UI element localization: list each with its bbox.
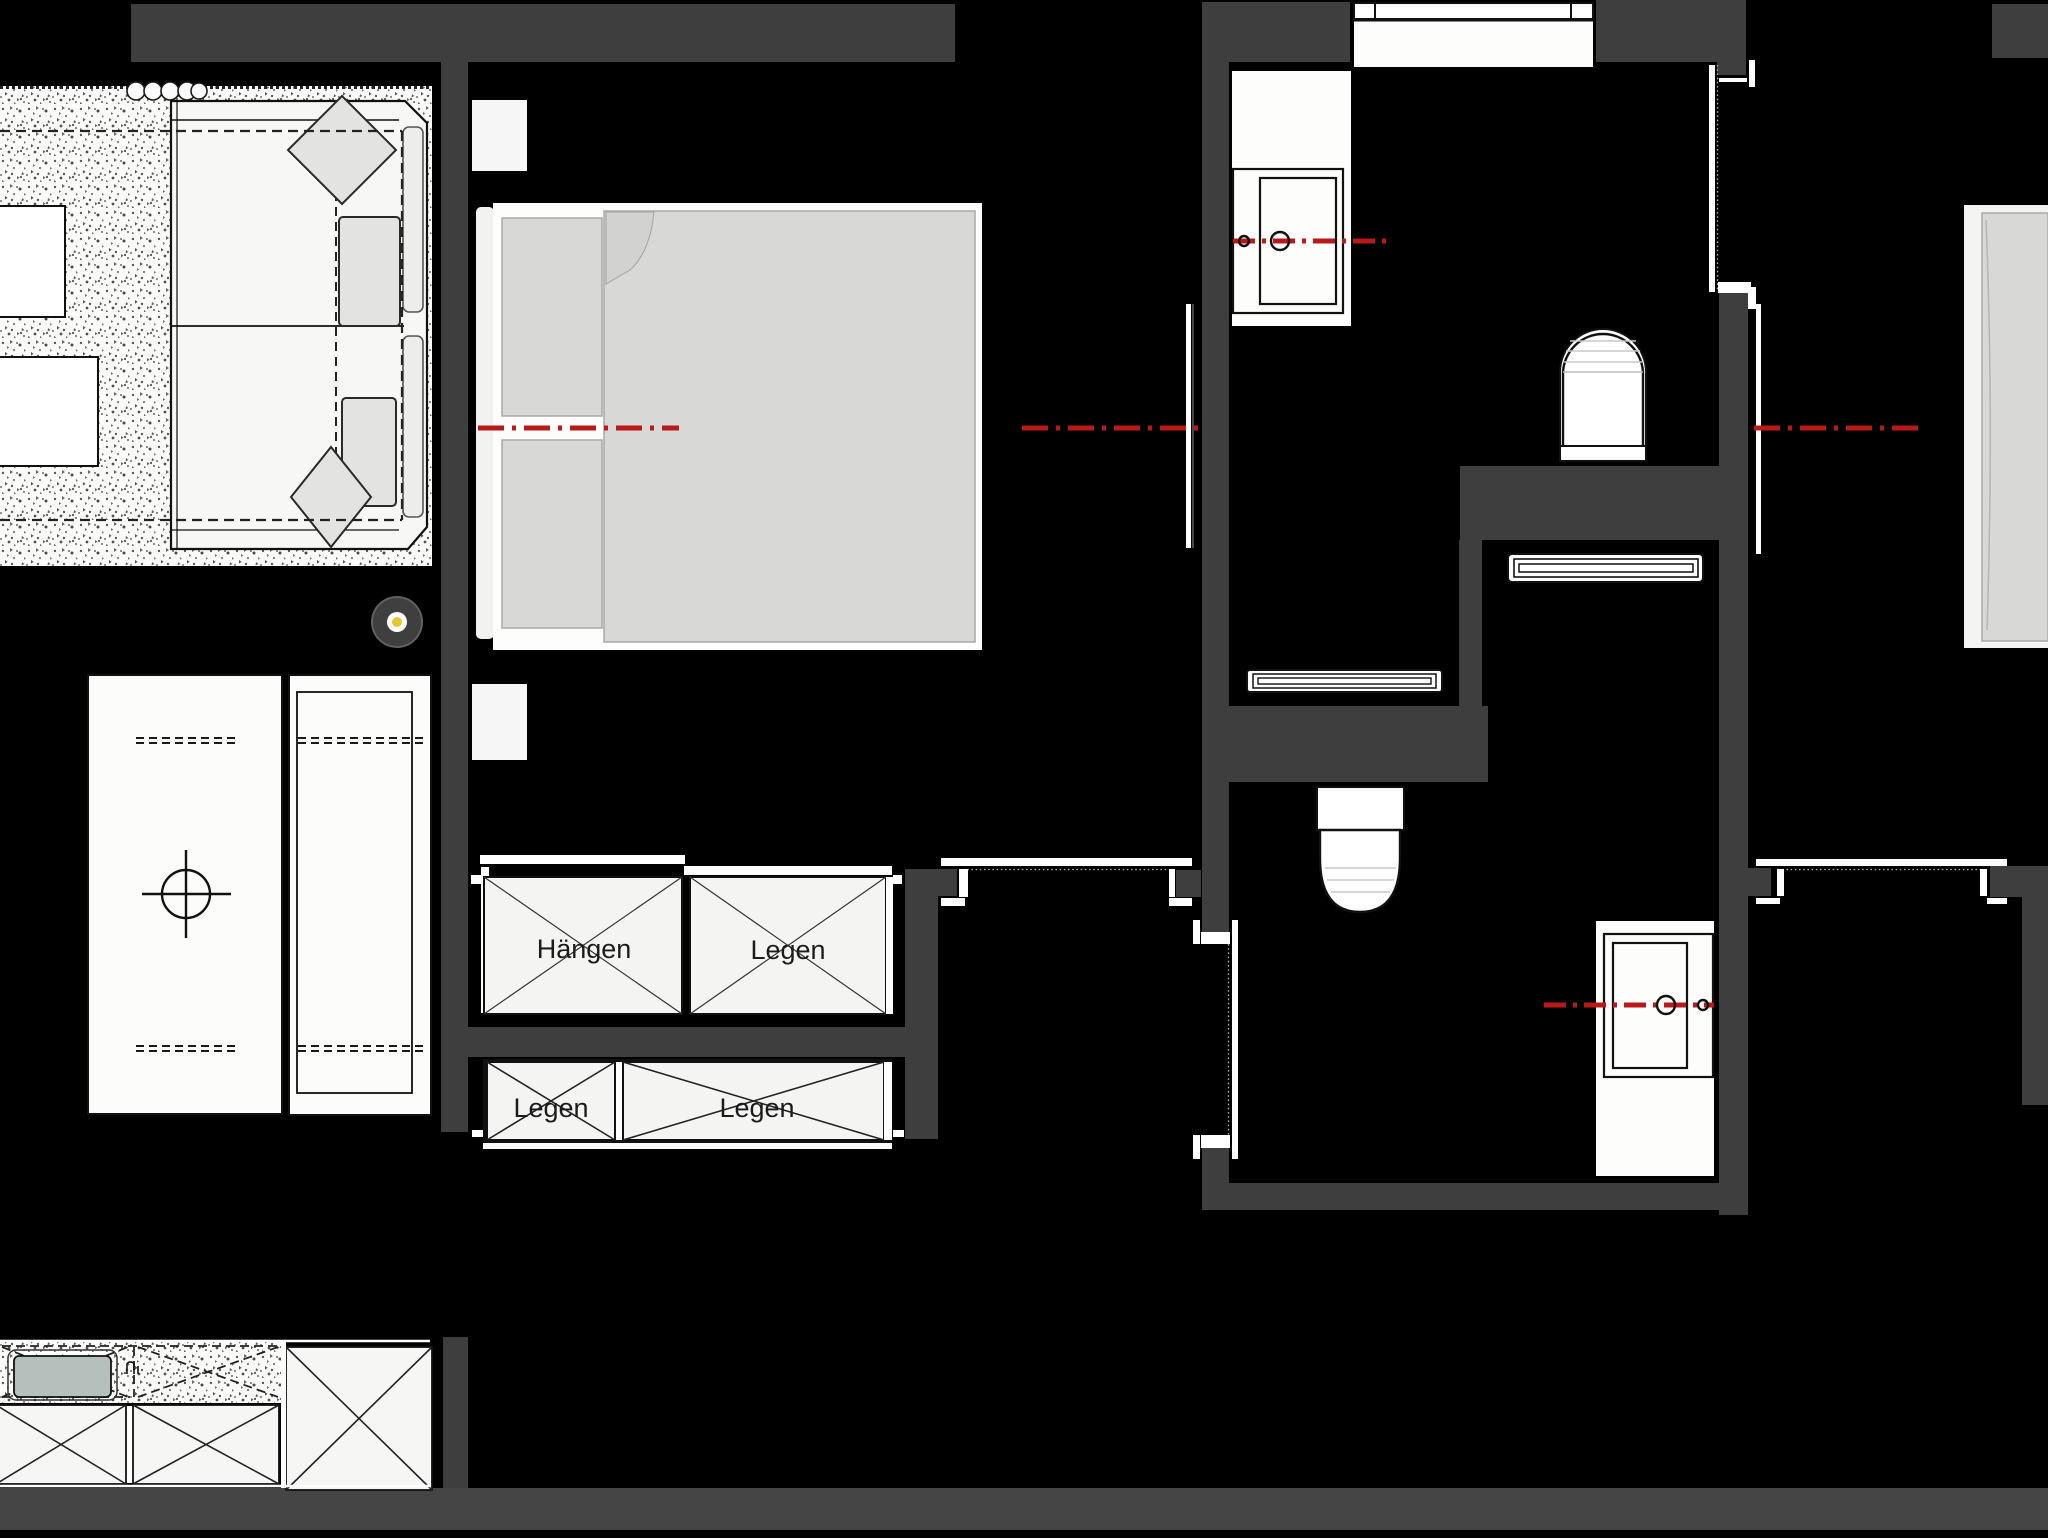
svg-text:Legen: Legen: [513, 1093, 588, 1123]
svg-text:Hängen: Hängen: [537, 934, 632, 964]
svg-text:Legen: Legen: [750, 935, 825, 965]
svg-text:Legen: Legen: [719, 1093, 794, 1123]
